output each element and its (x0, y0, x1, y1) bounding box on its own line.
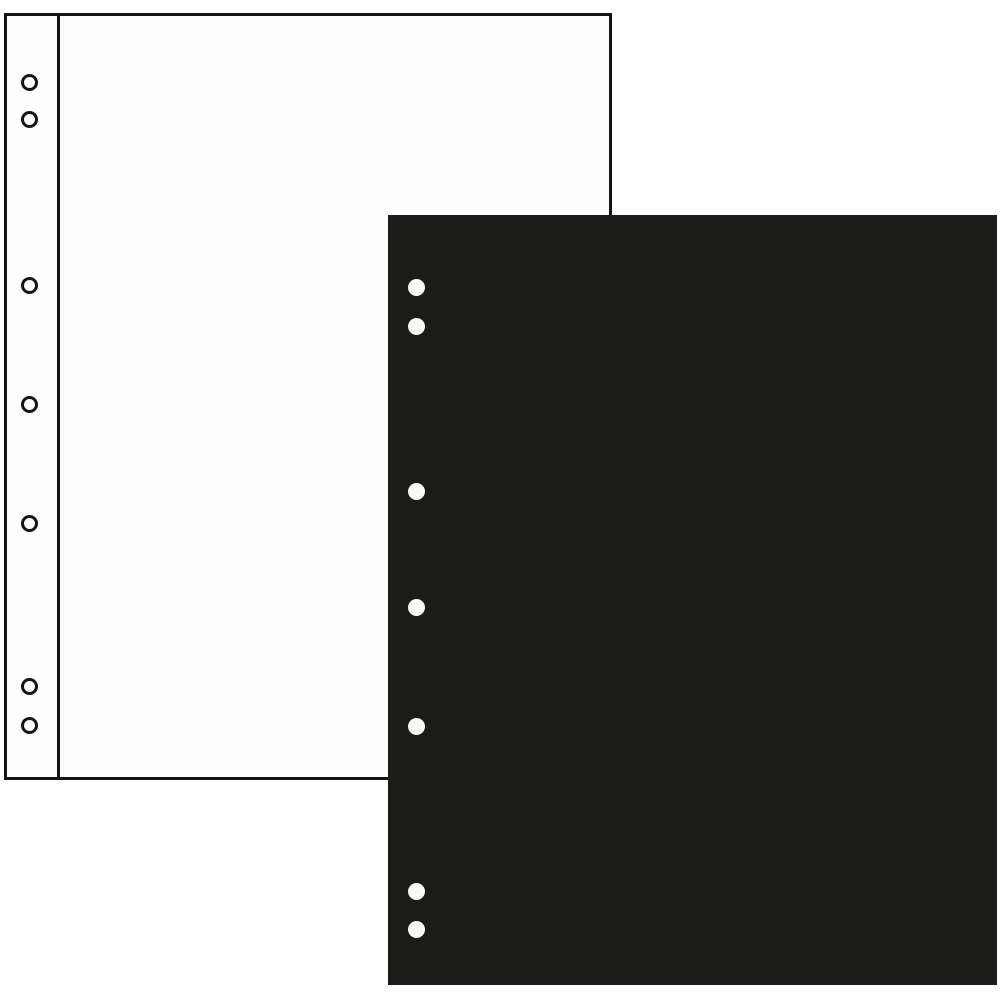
binder-hole-outlined (21, 717, 38, 734)
binder-hole-outlined (21, 111, 38, 128)
binder-hole-outlined (21, 515, 38, 532)
binder-hole-punched (408, 718, 425, 735)
binder-hole-punched (408, 483, 425, 500)
binder-hole-punched (408, 318, 425, 335)
binder-hole-outlined (21, 396, 38, 413)
black-album-page (388, 215, 997, 985)
product-photo-scene (0, 0, 1000, 1000)
binder-hole-punched (408, 883, 425, 900)
binder-hole-outlined (21, 678, 38, 695)
binder-hole-outlined (21, 277, 38, 294)
binder-hole-punched (408, 279, 425, 296)
binder-hole-punched (408, 921, 425, 938)
binding-margin-line (57, 16, 60, 777)
binder-hole-outlined (21, 74, 38, 91)
binder-hole-punched (408, 599, 425, 616)
